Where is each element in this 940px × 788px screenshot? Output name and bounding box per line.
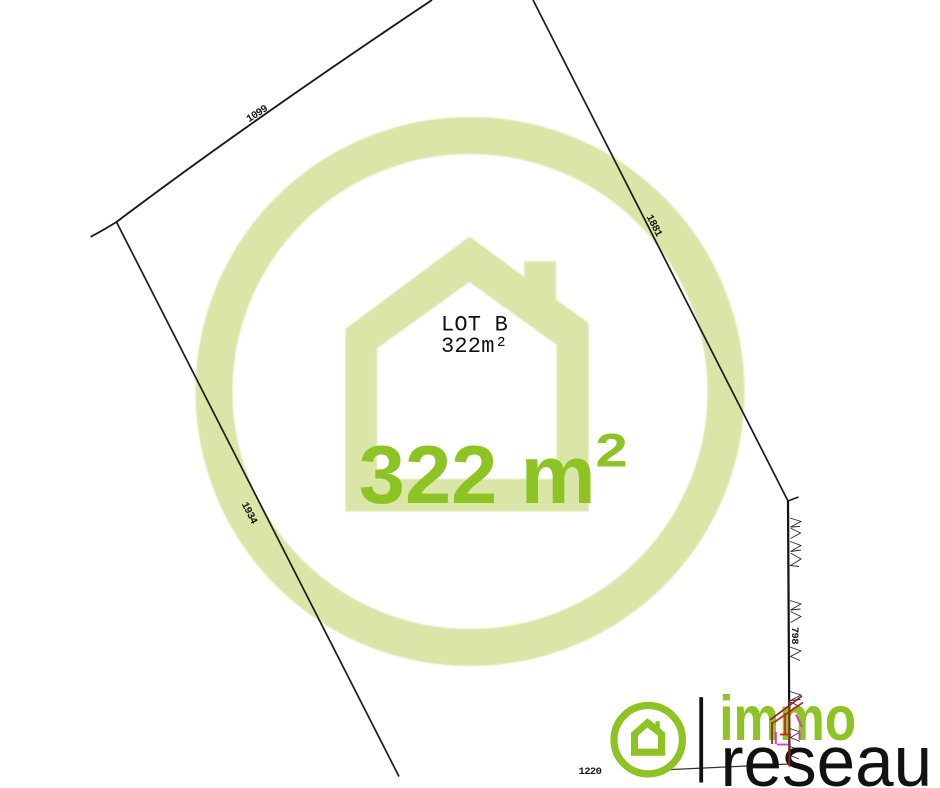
svg-text:1099: 1099 [245, 103, 271, 126]
svg-text:798: 798 [788, 627, 800, 644]
svg-text:reseau: reseau [721, 722, 933, 788]
svg-text:1220: 1220 [579, 766, 602, 778]
svg-text:322: 322 [359, 428, 497, 521]
svg-text:m: m [521, 428, 596, 521]
svg-text:322m²: 322m² [441, 334, 508, 359]
svg-text:2: 2 [596, 424, 628, 477]
